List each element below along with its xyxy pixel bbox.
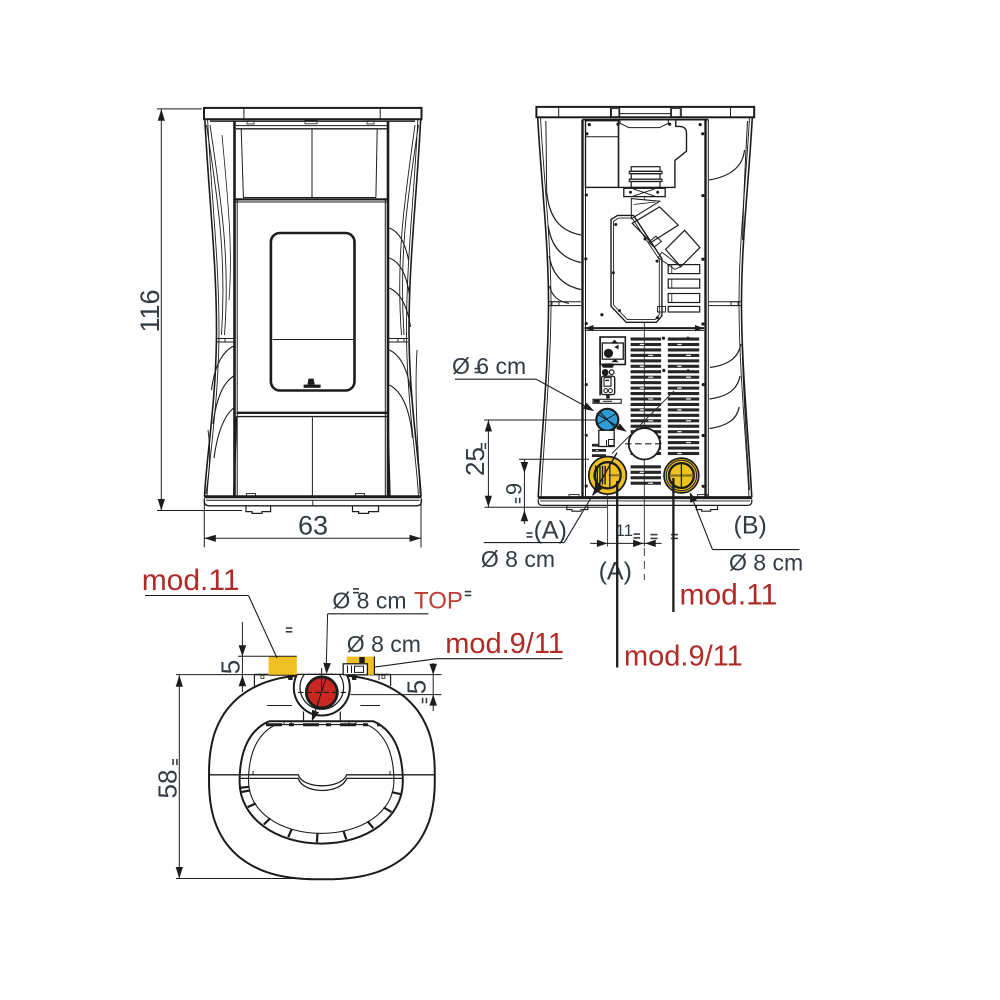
svg-text:Ø 8 cm: Ø 8 cm bbox=[347, 631, 421, 657]
svg-text:5: 5 bbox=[402, 680, 432, 694]
svg-text:25: 25 bbox=[460, 447, 490, 476]
svg-text:Ø 8 cm: Ø 8 cm bbox=[729, 550, 803, 576]
svg-text:Ø 8 cm: Ø 8 cm bbox=[481, 546, 555, 572]
svg-text:(A): (A) bbox=[534, 517, 567, 545]
svg-text:(A): (A) bbox=[599, 558, 632, 586]
svg-text:9: 9 bbox=[502, 483, 527, 495]
svg-text:116: 116 bbox=[135, 289, 165, 332]
svg-text:63: 63 bbox=[298, 511, 328, 541]
svg-text:58: 58 bbox=[153, 770, 183, 799]
svg-text:Ø 8 cm: Ø 8 cm bbox=[332, 588, 406, 614]
svg-text:5: 5 bbox=[216, 660, 246, 674]
svg-text:TOP: TOP bbox=[414, 588, 463, 615]
svg-text:mod.9/11: mod.9/11 bbox=[624, 641, 743, 673]
svg-text:mod.11: mod.11 bbox=[680, 579, 778, 612]
svg-text:mod.11: mod.11 bbox=[142, 564, 240, 597]
svg-text:mod.9/11: mod.9/11 bbox=[445, 628, 564, 660]
svg-text:Ø 6 cm: Ø 6 cm bbox=[452, 353, 526, 379]
svg-text:(B): (B) bbox=[734, 512, 767, 540]
